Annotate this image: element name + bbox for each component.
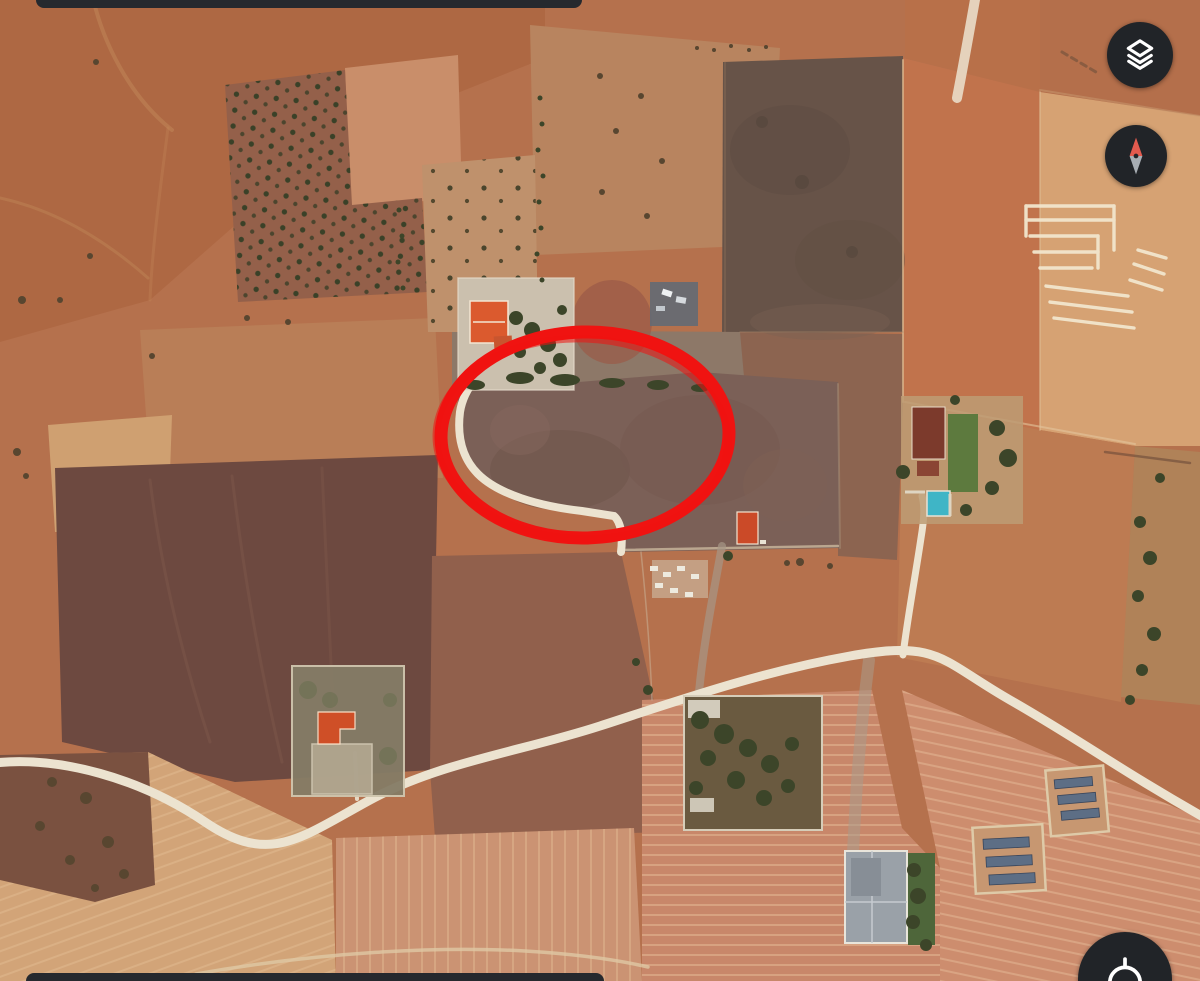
my-location-icon — [1097, 951, 1153, 981]
red-shed — [737, 512, 758, 544]
compass-icon — [1114, 134, 1158, 178]
barn-pen — [972, 824, 1045, 894]
layers-icon — [1120, 35, 1160, 75]
layers-button[interactable] — [1107, 22, 1173, 88]
dark-roof-house — [912, 407, 945, 459]
satellite-imagery — [0, 0, 1200, 981]
system-bar-top — [36, 0, 582, 8]
system-bar-bottom — [26, 973, 604, 981]
compass-button[interactable] — [1105, 125, 1167, 187]
map-canvas[interactable] — [0, 0, 1200, 981]
swimming-pool — [927, 491, 950, 516]
barn-pen — [1045, 766, 1109, 837]
lawn — [948, 414, 978, 492]
